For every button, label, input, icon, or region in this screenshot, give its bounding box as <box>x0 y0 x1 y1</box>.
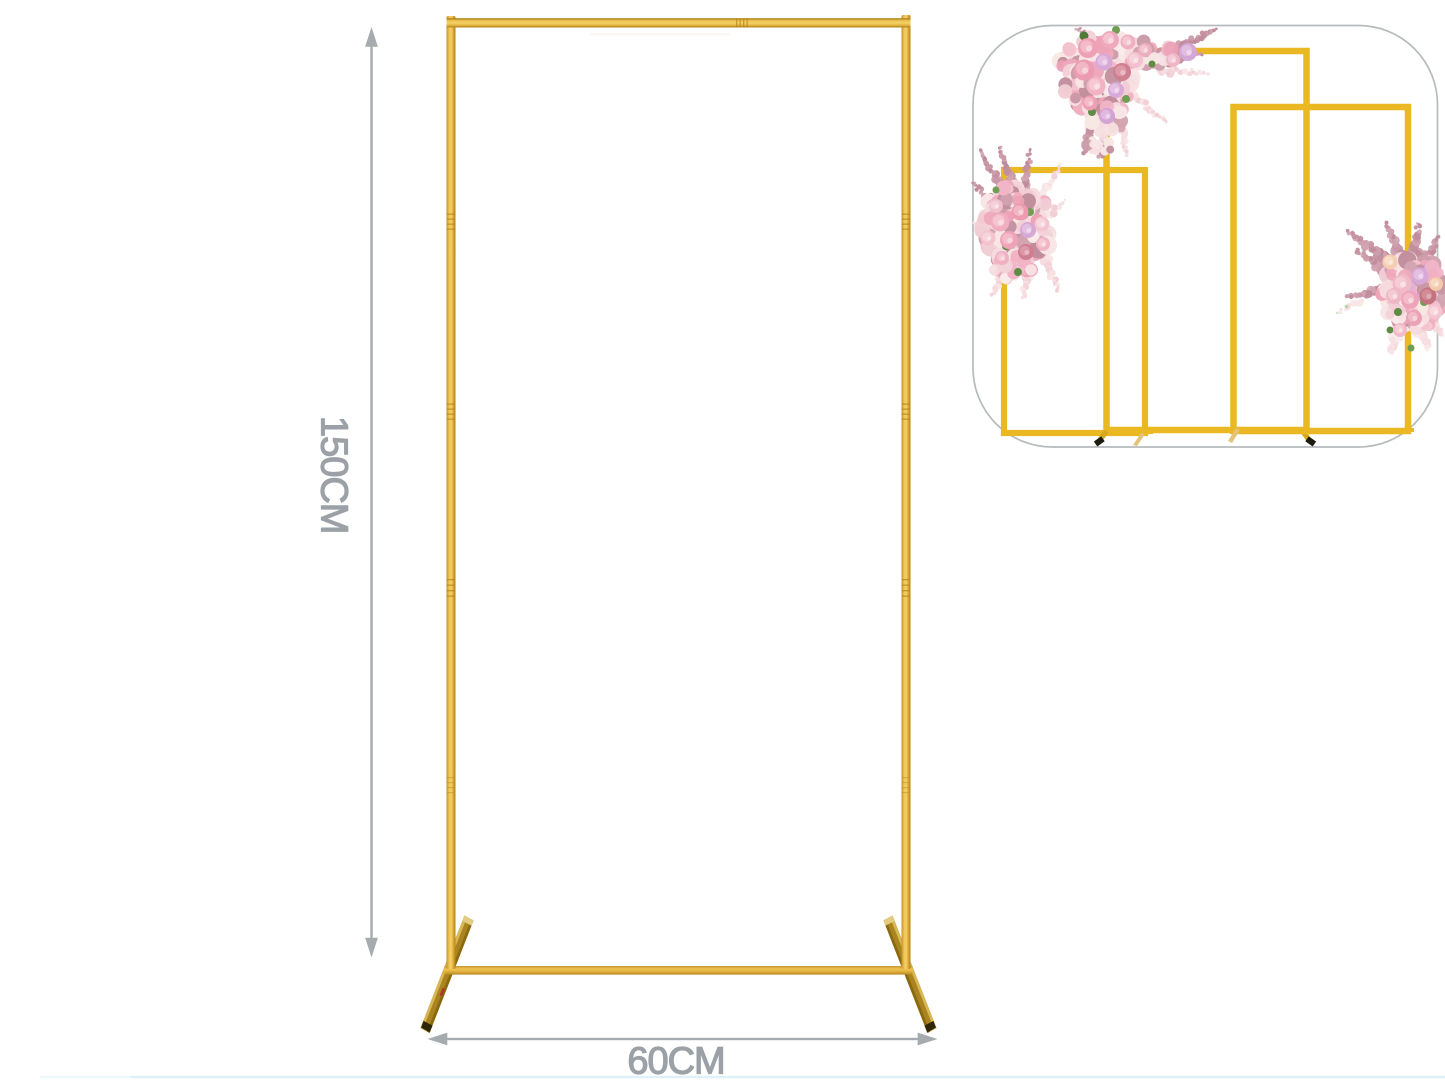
svg-text:150CM: 150CM <box>313 416 355 534</box>
svg-text:60CM: 60CM <box>627 1041 724 1080</box>
